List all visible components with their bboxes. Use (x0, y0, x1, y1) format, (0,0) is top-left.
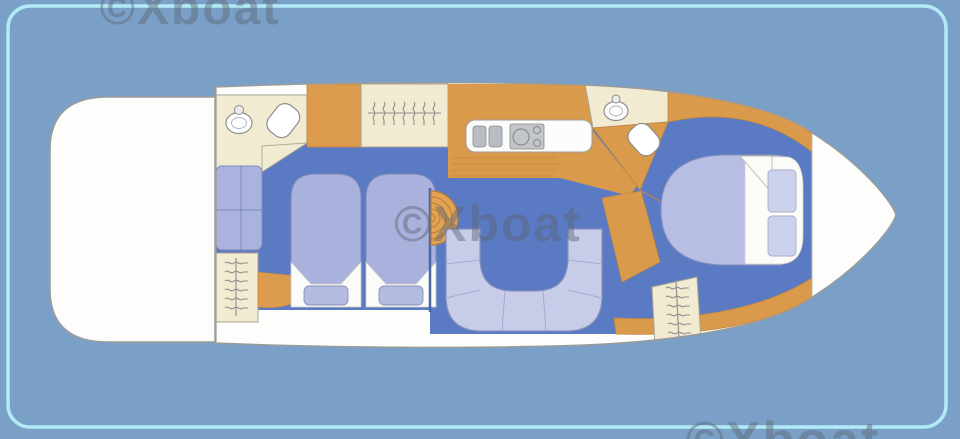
berth-pillow (304, 286, 348, 305)
galley-sink-icon (473, 126, 486, 147)
forward-head-sink-icon (604, 102, 628, 121)
watermark-top: ©Xboat (100, 0, 281, 35)
bed-pillow-2 (768, 216, 796, 256)
forward-head-faucet-icon (612, 95, 620, 103)
aft-head-faucet-icon (235, 106, 244, 115)
galley-sink-icon-2 (489, 126, 502, 147)
galley-stove-icon (510, 124, 544, 149)
master-island-bed (661, 155, 803, 265)
bed-pillow-1 (768, 170, 796, 212)
berth-pillow (379, 286, 423, 305)
watermark-center: ©Xboat (394, 196, 582, 252)
aft-head-sink-icon (226, 113, 252, 134)
aft-cabin-cabinet (307, 84, 361, 147)
twin-berth-port (291, 174, 361, 307)
aft-swim-deck (50, 97, 218, 342)
aft-cabin-sofa (216, 166, 262, 250)
watermark-bottom-right: ©Xboat (686, 412, 881, 439)
boat-floorplan-image: ©Xboat ©Xboat ©Xboat (0, 0, 960, 439)
floorplan-svg: ©Xboat ©Xboat ©Xboat (0, 0, 960, 439)
